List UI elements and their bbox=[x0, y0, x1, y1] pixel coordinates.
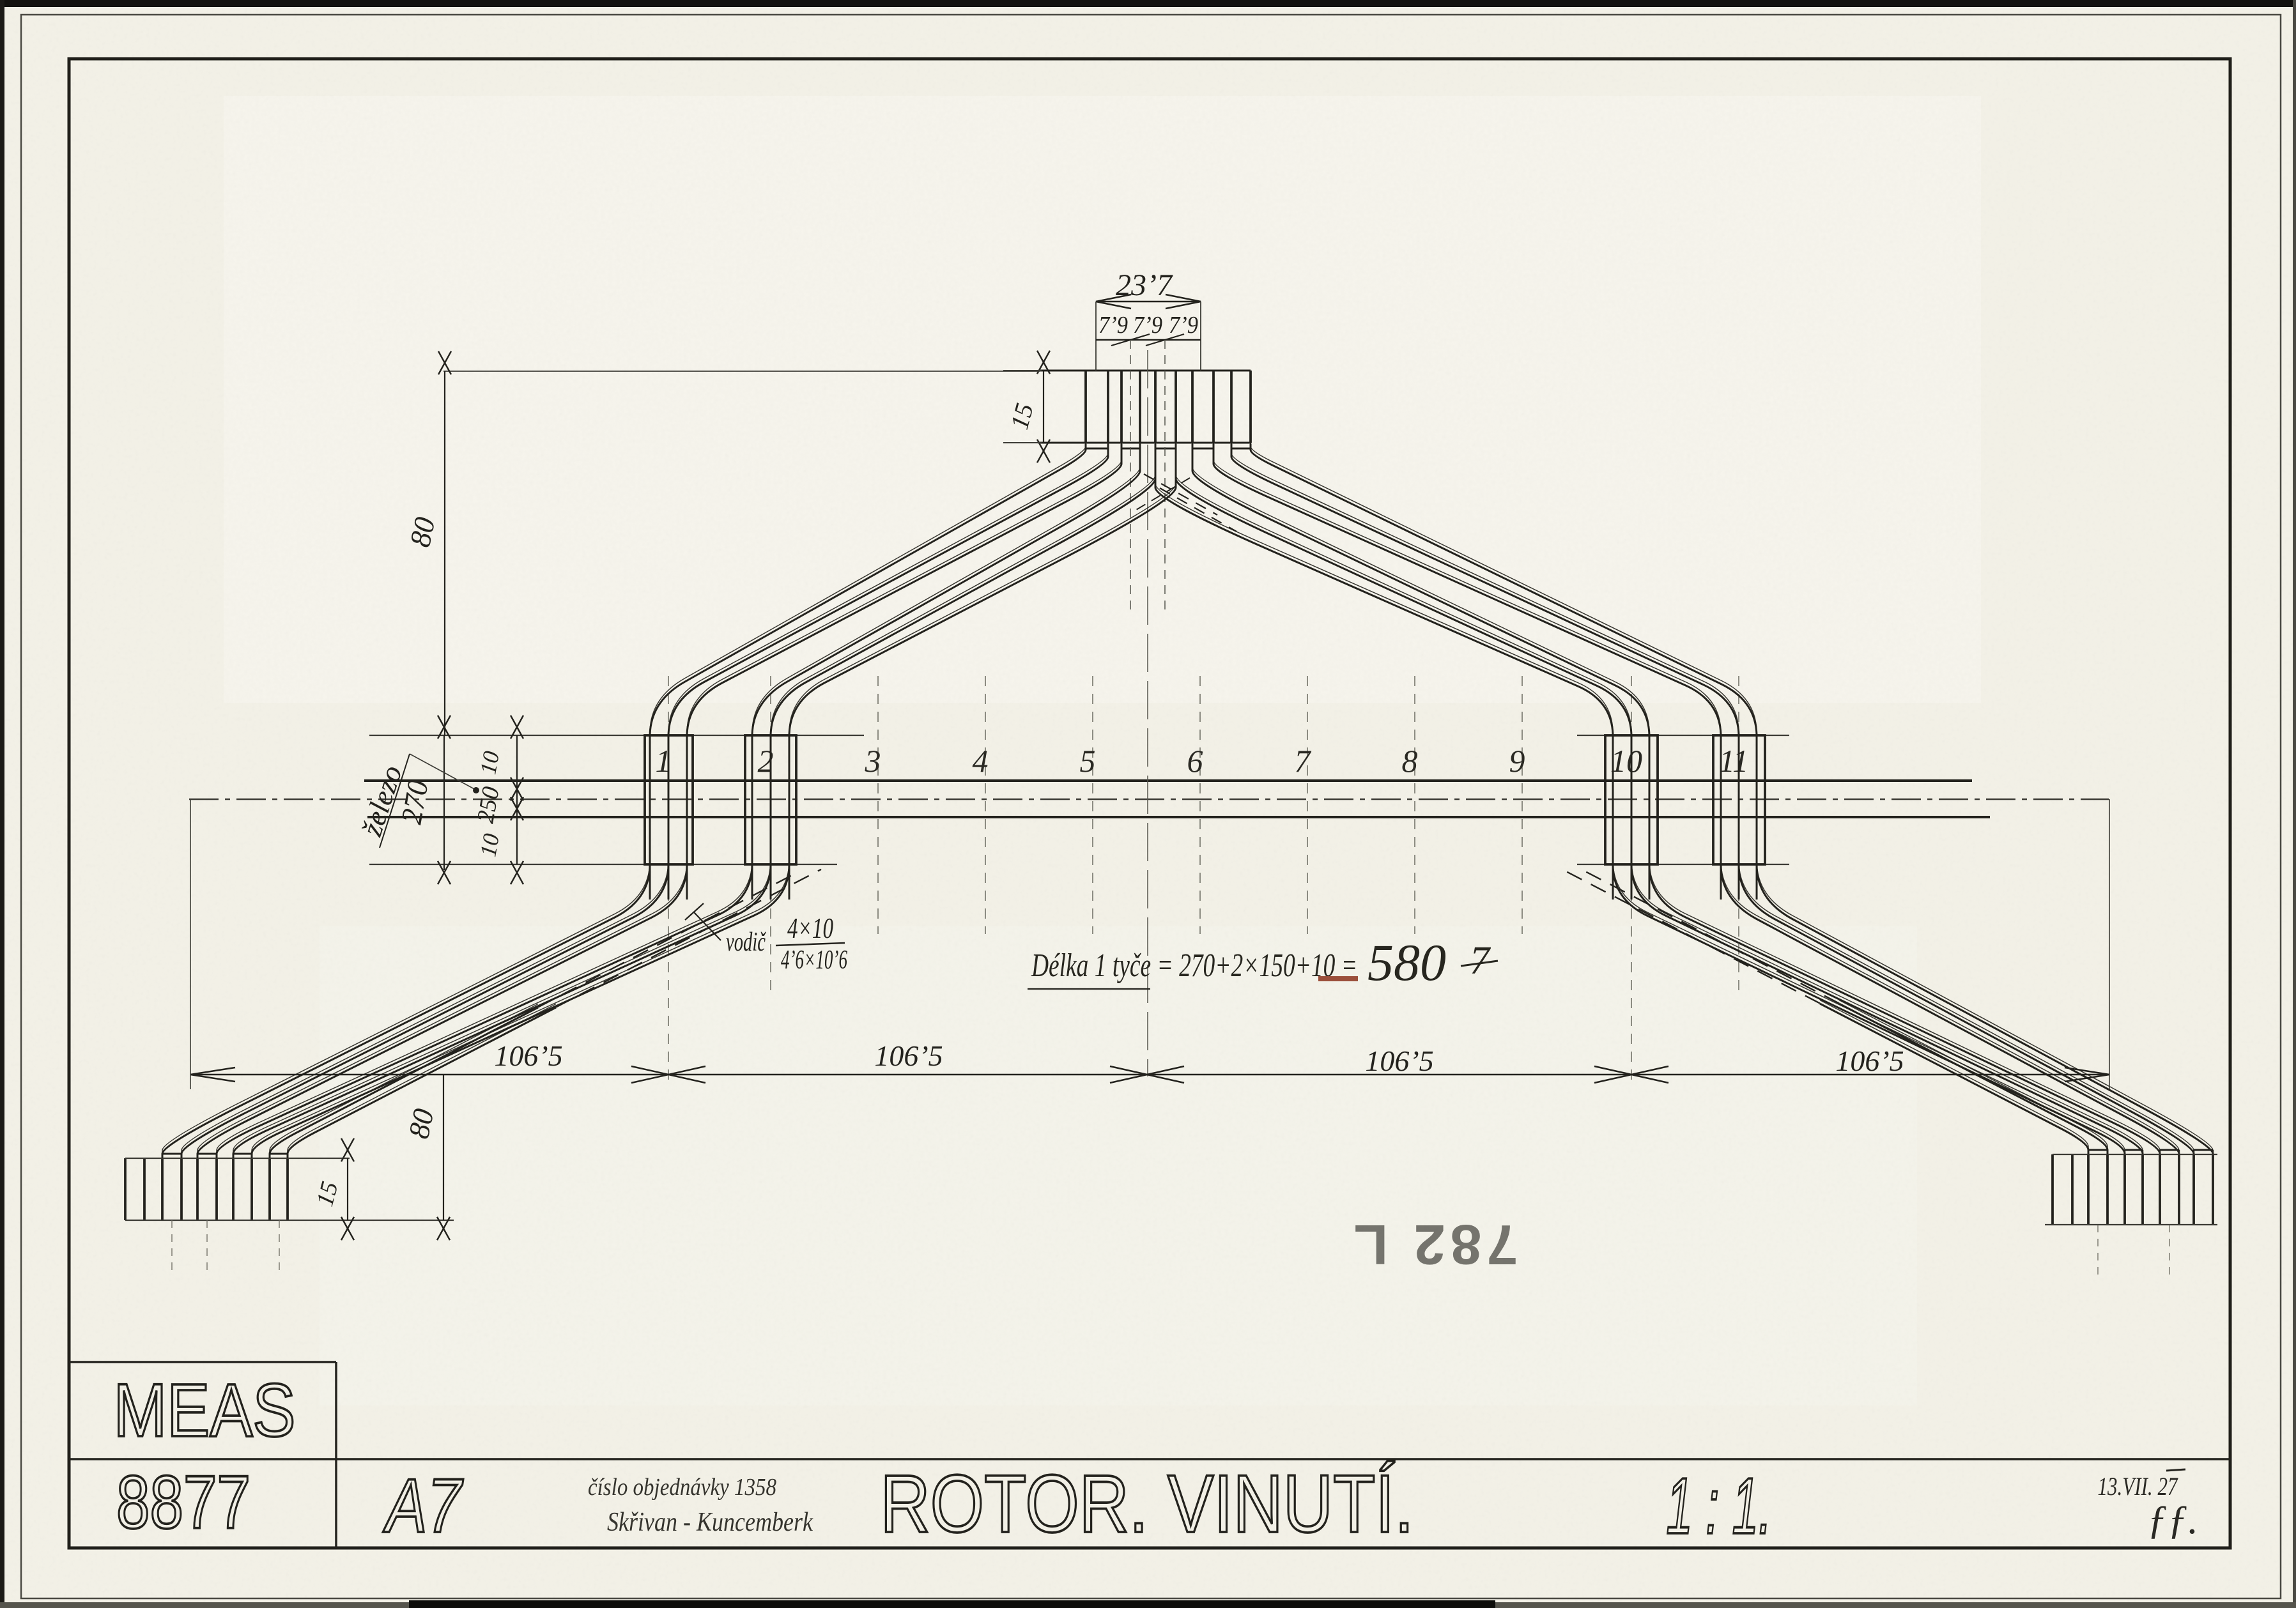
svg-text:7’9: 7’9 bbox=[1169, 312, 1198, 339]
svg-text:782 L: 782 L bbox=[1348, 1213, 1518, 1276]
svg-text:4’6×10’6: 4’6×10’6 bbox=[781, 946, 847, 975]
svg-text:8877: 8877 bbox=[116, 1460, 250, 1545]
svg-text:4: 4 bbox=[973, 743, 989, 779]
svg-text:106’5: 106’5 bbox=[874, 1039, 943, 1072]
svg-text:A7: A7 bbox=[383, 1463, 463, 1549]
svg-text:106’5: 106’5 bbox=[494, 1039, 562, 1072]
svg-text:580: 580 bbox=[1368, 933, 1446, 992]
svg-text:7: 7 bbox=[1470, 939, 1491, 983]
svg-text:ROTOR. VINUTÍ.: ROTOR. VINUTÍ. bbox=[881, 1459, 1414, 1550]
svg-text:vodič: vodič bbox=[726, 928, 767, 957]
svg-text:5: 5 bbox=[1080, 743, 1096, 779]
svg-text:číslo objednávky 1358: číslo objednávky 1358 bbox=[588, 1474, 776, 1501]
svg-text:11: 11 bbox=[1719, 743, 1748, 779]
svg-text:23’7: 23’7 bbox=[1116, 268, 1173, 302]
svg-text:1 : 1.: 1 : 1. bbox=[1667, 1462, 1772, 1551]
svg-text:6: 6 bbox=[1187, 743, 1203, 779]
svg-text:106’5: 106’5 bbox=[1365, 1045, 1433, 1077]
svg-text:10: 10 bbox=[475, 749, 504, 776]
svg-text:7’9: 7’9 bbox=[1133, 312, 1162, 339]
svg-text:Délka 1 tyče = 270+2×150+10 =: Délka 1 tyče = 270+2×150+10 = bbox=[1031, 947, 1357, 984]
svg-text:3: 3 bbox=[865, 743, 881, 779]
svg-text:7’9: 7’9 bbox=[1098, 312, 1128, 339]
svg-text:7: 7 bbox=[1295, 743, 1312, 779]
svg-text:8: 8 bbox=[1402, 743, 1418, 779]
svg-text:ƒƒ.: ƒƒ. bbox=[2147, 1497, 2198, 1542]
svg-text:MEAS: MEAS bbox=[114, 1368, 296, 1453]
svg-text:9: 9 bbox=[1509, 743, 1525, 779]
svg-text:10: 10 bbox=[1610, 743, 1642, 779]
svg-text:10: 10 bbox=[475, 832, 504, 859]
svg-text:106’5: 106’5 bbox=[1835, 1045, 1904, 1077]
svg-text:Skřivan - Kuncemberk: Skřivan - Kuncemberk bbox=[607, 1508, 813, 1537]
svg-text:4×10: 4×10 bbox=[787, 912, 833, 944]
